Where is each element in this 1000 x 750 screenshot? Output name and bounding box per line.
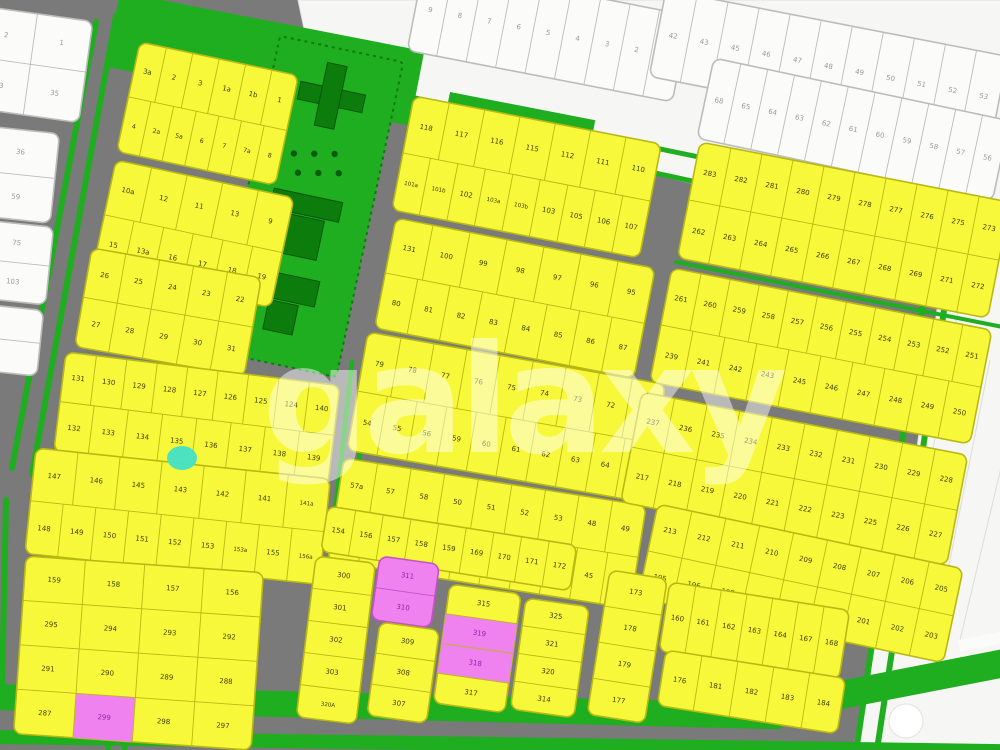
plot-48: 48 — [823, 62, 833, 72]
white-top-left-outline — [0, 6, 93, 123]
plot-59: 59 — [11, 193, 21, 202]
plot-303: 303 — [325, 667, 339, 677]
plot-145: 145 — [131, 481, 145, 490]
plot-97: 97 — [552, 273, 562, 283]
green-strip — [2, 500, 6, 690]
plot-29: 29 — [159, 332, 169, 341]
plot-297: 297 — [216, 721, 230, 730]
white-left-2: 75103 — [0, 220, 54, 305]
plot-135: 135 — [170, 436, 184, 446]
site-plan-map: 2133353659751039876543214243454647484950… — [0, 0, 1000, 750]
plot-157: 157 — [166, 584, 180, 593]
teal-marker — [167, 446, 197, 470]
plot-132: 132 — [67, 424, 81, 434]
plot-126: 126 — [223, 393, 238, 403]
plot-137: 137 — [238, 445, 252, 455]
white-top-left: 213335 — [0, 6, 93, 123]
plot-159: 159 — [47, 576, 61, 585]
plot-30: 30 — [192, 338, 202, 347]
plot-149: 149 — [70, 528, 84, 537]
plot-292: 292 — [222, 633, 236, 642]
plot-151: 151 — [135, 534, 149, 543]
plot-36: 36 — [16, 148, 26, 157]
plot-27: 27 — [91, 320, 101, 329]
plot-49: 49 — [854, 68, 864, 78]
block-b7-pink-a: 311310 — [371, 556, 439, 628]
plot-49: 49 — [620, 524, 630, 533]
plot-295: 295 — [44, 620, 58, 629]
plot-293: 293 — [163, 629, 177, 638]
plot-131: 131 — [71, 374, 85, 384]
plot-300: 300 — [337, 571, 351, 581]
plot-80: 80 — [391, 299, 401, 309]
plot-155: 155 — [266, 548, 280, 557]
plot-45: 45 — [730, 44, 740, 54]
plot-47: 47 — [792, 56, 802, 66]
plot-98: 98 — [515, 266, 525, 276]
plot-53: 53 — [979, 92, 989, 102]
plot-287: 287 — [38, 709, 52, 718]
plot-75: 75 — [12, 239, 22, 248]
plot-301: 301 — [333, 603, 347, 613]
plot-129: 129 — [132, 381, 146, 391]
plot-48: 48 — [587, 519, 597, 528]
block-b7-col2: 315319318317 — [433, 584, 521, 713]
plot-142: 142 — [215, 490, 229, 499]
plot-50: 50 — [452, 498, 462, 507]
plot-298: 298 — [157, 717, 171, 726]
plot-52: 52 — [947, 86, 957, 96]
plot-50: 50 — [885, 74, 895, 84]
plot-51: 51 — [486, 503, 496, 512]
roundabout — [889, 704, 923, 738]
plot-23: 23 — [201, 289, 211, 298]
plot-146: 146 — [89, 476, 104, 485]
block-6: 1591581571562952942932922912902892882872… — [14, 556, 264, 750]
plot-289: 289 — [160, 673, 174, 682]
plot-22: 22 — [235, 295, 245, 304]
plot-53: 53 — [553, 514, 563, 523]
plot-45: 45 — [584, 571, 594, 580]
white-left-1-outline — [0, 126, 60, 223]
plot-28: 28 — [125, 326, 135, 335]
plot-288: 288 — [219, 677, 233, 686]
plot-133: 133 — [101, 428, 115, 438]
plot-148: 148 — [37, 524, 51, 533]
plot-31: 31 — [226, 344, 236, 353]
plot-51: 51 — [916, 80, 926, 90]
plot-143: 143 — [173, 485, 187, 494]
white-left-1: 3659 — [0, 126, 60, 223]
plot-294: 294 — [103, 624, 117, 633]
plot-95: 95 — [626, 287, 636, 297]
white-left-2-outline — [0, 220, 54, 305]
plot-302: 302 — [329, 635, 343, 645]
plot-158: 158 — [107, 580, 121, 589]
plot-136: 136 — [204, 441, 219, 451]
plot-map-canvas: 2133353659751039876543214243454647484950… — [0, 0, 1000, 750]
plot-128: 128 — [162, 385, 176, 395]
plot-103: 103 — [6, 277, 20, 286]
plot-141: 141 — [257, 494, 271, 503]
plot-57: 57 — [385, 487, 395, 496]
plot-130: 130 — [101, 378, 115, 388]
plot-99: 99 — [478, 259, 488, 269]
plot-299: 299 — [97, 713, 111, 722]
block-b7-midcol: 309308307 — [367, 622, 439, 723]
watermark-text: galaxy — [262, 314, 786, 488]
plot-150: 150 — [102, 531, 116, 540]
plot-58: 58 — [419, 492, 429, 501]
plot-25: 25 — [133, 277, 143, 286]
white-left-3 — [0, 304, 44, 376]
plot-152: 152 — [168, 538, 182, 547]
plot-134: 134 — [135, 432, 150, 442]
plot-153: 153 — [201, 541, 215, 550]
plot-127: 127 — [193, 389, 207, 399]
plot-52: 52 — [520, 508, 530, 517]
plot-43: 43 — [699, 37, 709, 47]
plot-35: 35 — [50, 89, 60, 98]
plot-156: 156 — [225, 588, 239, 597]
plot-147: 147 — [47, 472, 61, 481]
plot-42: 42 — [668, 31, 678, 41]
plot-291: 291 — [41, 665, 55, 674]
plot-290: 290 — [100, 669, 114, 678]
